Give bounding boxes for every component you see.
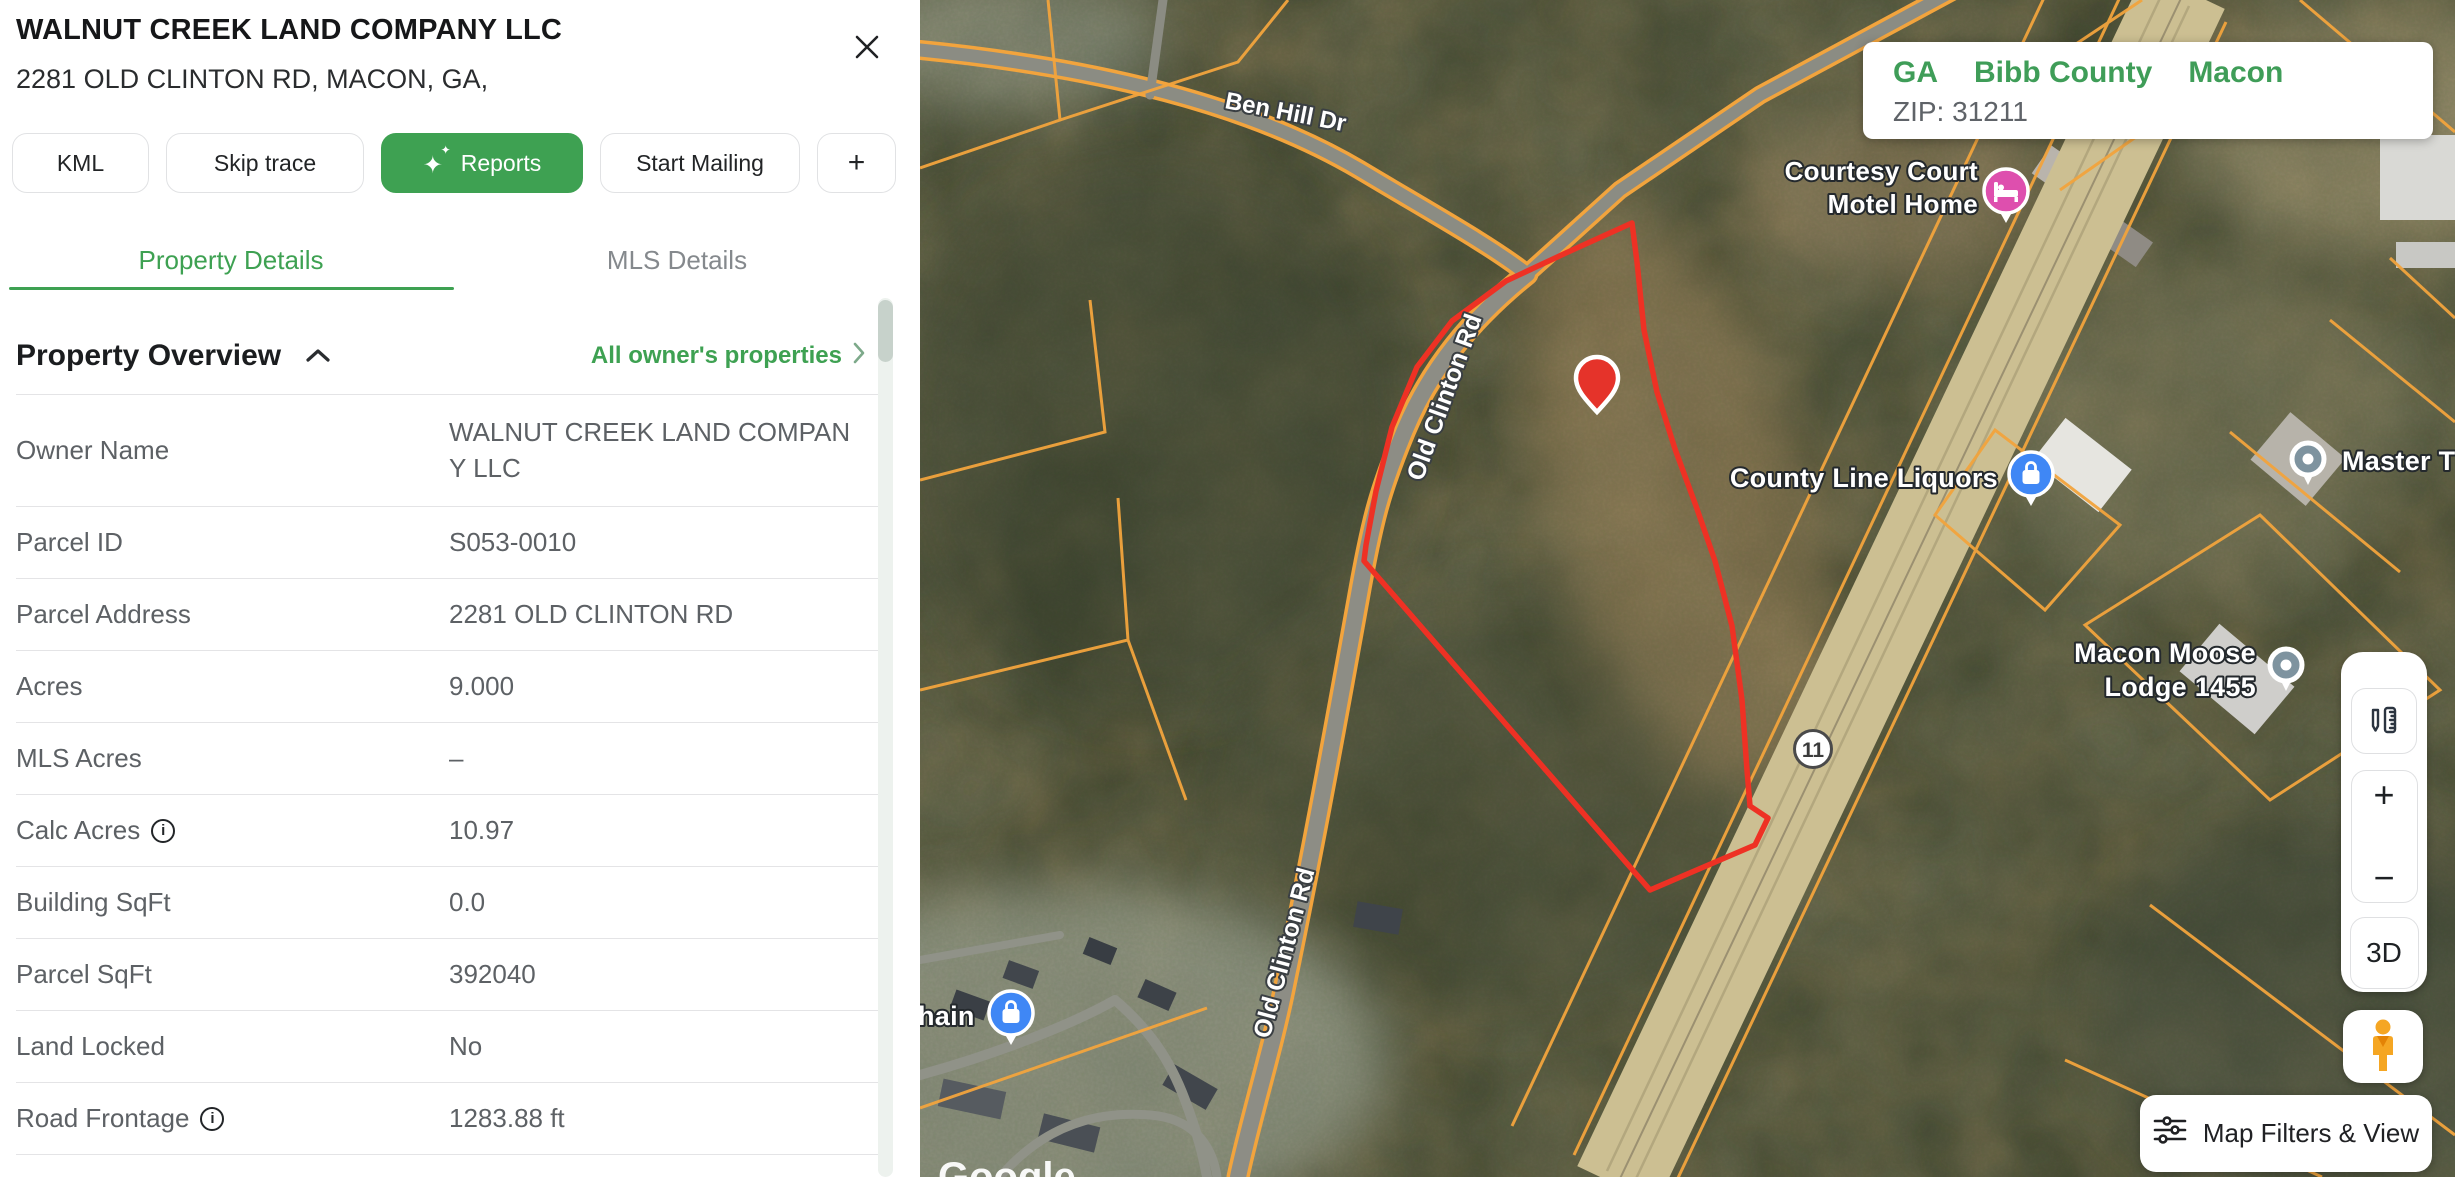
zoom-control: + −	[2351, 770, 2418, 903]
start-mailing-button[interactable]: Start Mailing	[600, 133, 800, 193]
info-icon[interactable]	[151, 819, 175, 843]
table-row: MLS Acres –	[16, 723, 888, 795]
field-value: 0.0	[449, 885, 861, 920]
field-value: 1283.88 ft	[449, 1101, 861, 1136]
property-fields-table: Owner Name WALNUT CREEK LAND COMPANY LLC…	[16, 394, 888, 1155]
street-view-pegman-button[interactable]	[2343, 1010, 2423, 1083]
field-value: No	[449, 1029, 861, 1064]
location-county-link[interactable]: Bibb County	[1974, 56, 2152, 90]
skip-trace-button[interactable]: Skip trace	[166, 133, 364, 193]
table-row: Parcel SqFt 392040	[16, 939, 888, 1011]
property-overview-header: Property Overview All owner's properties	[16, 334, 866, 378]
filters-icon	[2153, 1115, 2187, 1152]
field-label: Road Frontage	[16, 1103, 449, 1134]
table-row: Land Locked No	[16, 1011, 888, 1083]
field-value: 392040	[449, 957, 861, 992]
field-label: Acres	[16, 671, 449, 702]
field-label: Parcel Address	[16, 599, 449, 630]
chevron-right-icon	[852, 341, 866, 372]
route-11-shield: 11	[1795, 731, 1832, 768]
table-row: Road Frontage 1283.88 ft	[16, 1083, 888, 1155]
field-label: Land Locked	[16, 1031, 449, 1062]
tab-mls-details[interactable]: MLS Details	[462, 233, 892, 287]
poi-label-motel: Courtesy Court	[1785, 156, 1978, 186]
panel-scrollbar[interactable]	[878, 298, 893, 1177]
field-label: Parcel SqFt	[16, 959, 449, 990]
location-state-link[interactable]: GA	[1893, 56, 1938, 90]
field-label: MLS Acres	[16, 743, 449, 774]
page-title: WALNUT CREEK LAND COMPANY LLC	[16, 14, 562, 47]
poi-label-master: Master T	[2342, 446, 2455, 476]
table-row: Parcel ID S053-0010	[16, 507, 888, 579]
field-value: WALNUT CREEK LAND COMPANY LLC	[449, 415, 861, 485]
poi-label-lodge: Lodge 1455	[2104, 672, 2256, 702]
map-filters-label: Map Filters & View	[2203, 1118, 2419, 1149]
active-tab-underline	[9, 287, 454, 290]
field-label: Owner Name	[16, 435, 449, 466]
close-button[interactable]	[845, 26, 889, 70]
poi-label-chain: hain	[920, 1001, 975, 1031]
add-button[interactable]: +	[817, 133, 896, 193]
close-icon	[851, 31, 883, 66]
collapse-section-button[interactable]	[303, 346, 333, 366]
poi-label-motel: Motel Home	[1828, 189, 1978, 219]
property-app: WALNUT CREEK LAND COMPANY LLC 2281 OLD C…	[0, 0, 2455, 1177]
map-filters-button[interactable]: Map Filters & View	[2140, 1095, 2432, 1172]
panel-scrollbar-thumb[interactable]	[878, 300, 893, 362]
poi-label-liquors: County Line Liquors	[1730, 463, 1998, 493]
property-panel: WALNUT CREEK LAND COMPANY LLC 2281 OLD C…	[0, 0, 920, 1177]
field-value: –	[449, 741, 861, 776]
svg-text:11: 11	[1802, 739, 1825, 762]
map-canvas: 11 Ben Hill Dr Old Clinton Rd Old Clinto…	[920, 0, 2455, 1177]
field-value: 9.000	[449, 669, 861, 704]
zoom-out-button[interactable]: −	[2373, 860, 2394, 896]
field-value: 10.97	[449, 813, 861, 848]
table-row: Parcel Address 2281 OLD CLINTON RD	[16, 579, 888, 651]
google-watermark: Google	[938, 1155, 1076, 1177]
all-owner-properties-link[interactable]: All owner's properties	[591, 341, 866, 372]
section-title: Property Overview	[16, 339, 281, 373]
location-card: GA Bibb County Macon ZIP: 31211	[1863, 42, 2433, 139]
location-city-link[interactable]: Macon	[2188, 56, 2283, 90]
tab-property-details[interactable]: Property Details	[0, 233, 462, 287]
field-label: Building SqFt	[16, 887, 449, 918]
field-label: Calc Acres	[16, 815, 449, 846]
table-row: Calc Acres 10.97	[16, 795, 888, 867]
field-label: Parcel ID	[16, 527, 449, 558]
table-row: Acres 9.000	[16, 651, 888, 723]
sparkle-icon	[423, 149, 449, 177]
all-owner-properties-label: All owner's properties	[591, 342, 842, 370]
measure-icon	[2366, 702, 2402, 741]
field-value: 2281 OLD CLINTON RD	[449, 597, 861, 632]
zoom-in-button[interactable]: +	[2373, 777, 2394, 813]
poi-label-lodge: Macon Moose	[2074, 638, 2256, 668]
satellite-map[interactable]: 11 Ben Hill Dr Old Clinton Rd Old Clinto…	[920, 0, 2455, 1177]
action-bar: KML Skip trace Reports Start Mailing +	[12, 133, 896, 193]
table-row: Building SqFt 0.0	[16, 867, 888, 939]
info-icon[interactable]	[200, 1107, 224, 1131]
detail-tabs: Property Details MLS Details	[0, 233, 920, 290]
map-control-stack: + − 3D	[2341, 652, 2427, 992]
measure-tool-button[interactable]	[2351, 688, 2417, 754]
kml-button[interactable]: KML	[12, 133, 149, 193]
table-row: Owner Name WALNUT CREEK LAND COMPANY LLC	[16, 395, 888, 507]
property-address: 2281 OLD CLINTON RD, MACON, GA,	[16, 64, 488, 95]
reports-button-label: Reports	[461, 150, 542, 177]
reports-button[interactable]: Reports	[381, 133, 583, 193]
location-zip: ZIP: 31211	[1893, 96, 2403, 128]
pegman-icon	[2360, 1017, 2406, 1076]
3d-view-button[interactable]: 3D	[2350, 917, 2419, 989]
field-value: S053-0010	[449, 525, 861, 560]
